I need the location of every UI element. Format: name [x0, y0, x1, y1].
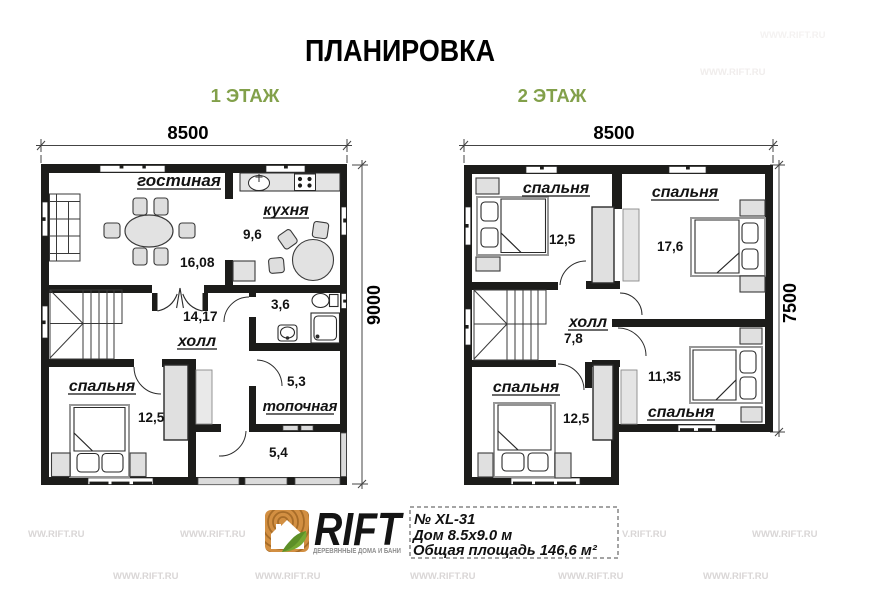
svg-text:Дом 8.5х9.0 м: Дом 8.5х9.0 м	[411, 528, 512, 544]
svg-text:Общая площадь 146,6 м²: Общая площадь 146,6 м²	[413, 543, 598, 559]
svg-text:топочная: топочная	[263, 398, 338, 415]
svg-text:WWW.RIFT.RU: WWW.RIFT.RU	[700, 67, 766, 78]
svg-text:12,5: 12,5	[549, 232, 576, 247]
svg-text:V.RIFT.RU: V.RIFT.RU	[622, 529, 667, 540]
svg-text:16,08: 16,08	[180, 255, 215, 270]
svg-text:11,35: 11,35	[648, 369, 682, 384]
svg-text:WWW.RIFT.RU: WWW.RIFT.RU	[752, 529, 818, 540]
svg-text:8500: 8500	[593, 122, 634, 143]
svg-text:гостиная: гостиная	[137, 171, 221, 190]
svg-text:12,5: 12,5	[138, 410, 165, 425]
svg-text:9000: 9000	[364, 285, 384, 325]
svg-text:8500: 8500	[167, 122, 208, 143]
svg-text:WWW.RIFT.RU: WWW.RIFT.RU	[558, 571, 624, 582]
svg-text:холл: холл	[568, 314, 607, 331]
svg-text:WWW.RIFT.RU: WWW.RIFT.RU	[180, 529, 246, 540]
svg-text:2 ЭТАЖ: 2 ЭТАЖ	[518, 85, 587, 106]
svg-text:ПЛАНИРОВКА: ПЛАНИРОВКА	[305, 33, 495, 68]
svg-text:холл: холл	[177, 333, 216, 350]
svg-text:WWW.RIFT.RU: WWW.RIFT.RU	[113, 571, 179, 582]
svg-text:спальня: спальня	[493, 379, 560, 396]
svg-text:WWW.RIFT.RU: WWW.RIFT.RU	[410, 571, 476, 582]
svg-text:WW.RIFT.RU: WW.RIFT.RU	[28, 529, 85, 540]
svg-text:12,5: 12,5	[563, 411, 590, 426]
svg-text:№ XL-31: № XL-31	[414, 512, 475, 528]
svg-text:14,17: 14,17	[183, 309, 218, 324]
svg-text:спальня: спальня	[648, 404, 715, 421]
svg-text:спальня: спальня	[523, 180, 590, 197]
svg-text:7500: 7500	[780, 283, 800, 323]
svg-text:17,6: 17,6	[657, 239, 684, 254]
svg-text:WWW.RIFT.RU: WWW.RIFT.RU	[760, 30, 826, 41]
svg-text:3,6: 3,6	[271, 297, 290, 312]
svg-text:WWW.RIFT.RU: WWW.RIFT.RU	[255, 571, 321, 582]
svg-text:1 ЭТАЖ: 1 ЭТАЖ	[211, 85, 280, 106]
svg-text:5,3: 5,3	[287, 374, 306, 389]
svg-text:кухня: кухня	[263, 202, 309, 219]
svg-text:9,6: 9,6	[243, 227, 262, 242]
svg-text:WWW.RIFT.RU: WWW.RIFT.RU	[703, 571, 769, 582]
svg-text:спальня: спальня	[69, 378, 136, 395]
svg-text:5,4: 5,4	[269, 445, 288, 460]
svg-text:спальня: спальня	[652, 184, 719, 201]
svg-text:7,8: 7,8	[564, 331, 583, 346]
svg-text:ДЕРЕВЯННЫЕ ДОМА И БАНИ: ДЕРЕВЯННЫЕ ДОМА И БАНИ	[313, 546, 401, 555]
